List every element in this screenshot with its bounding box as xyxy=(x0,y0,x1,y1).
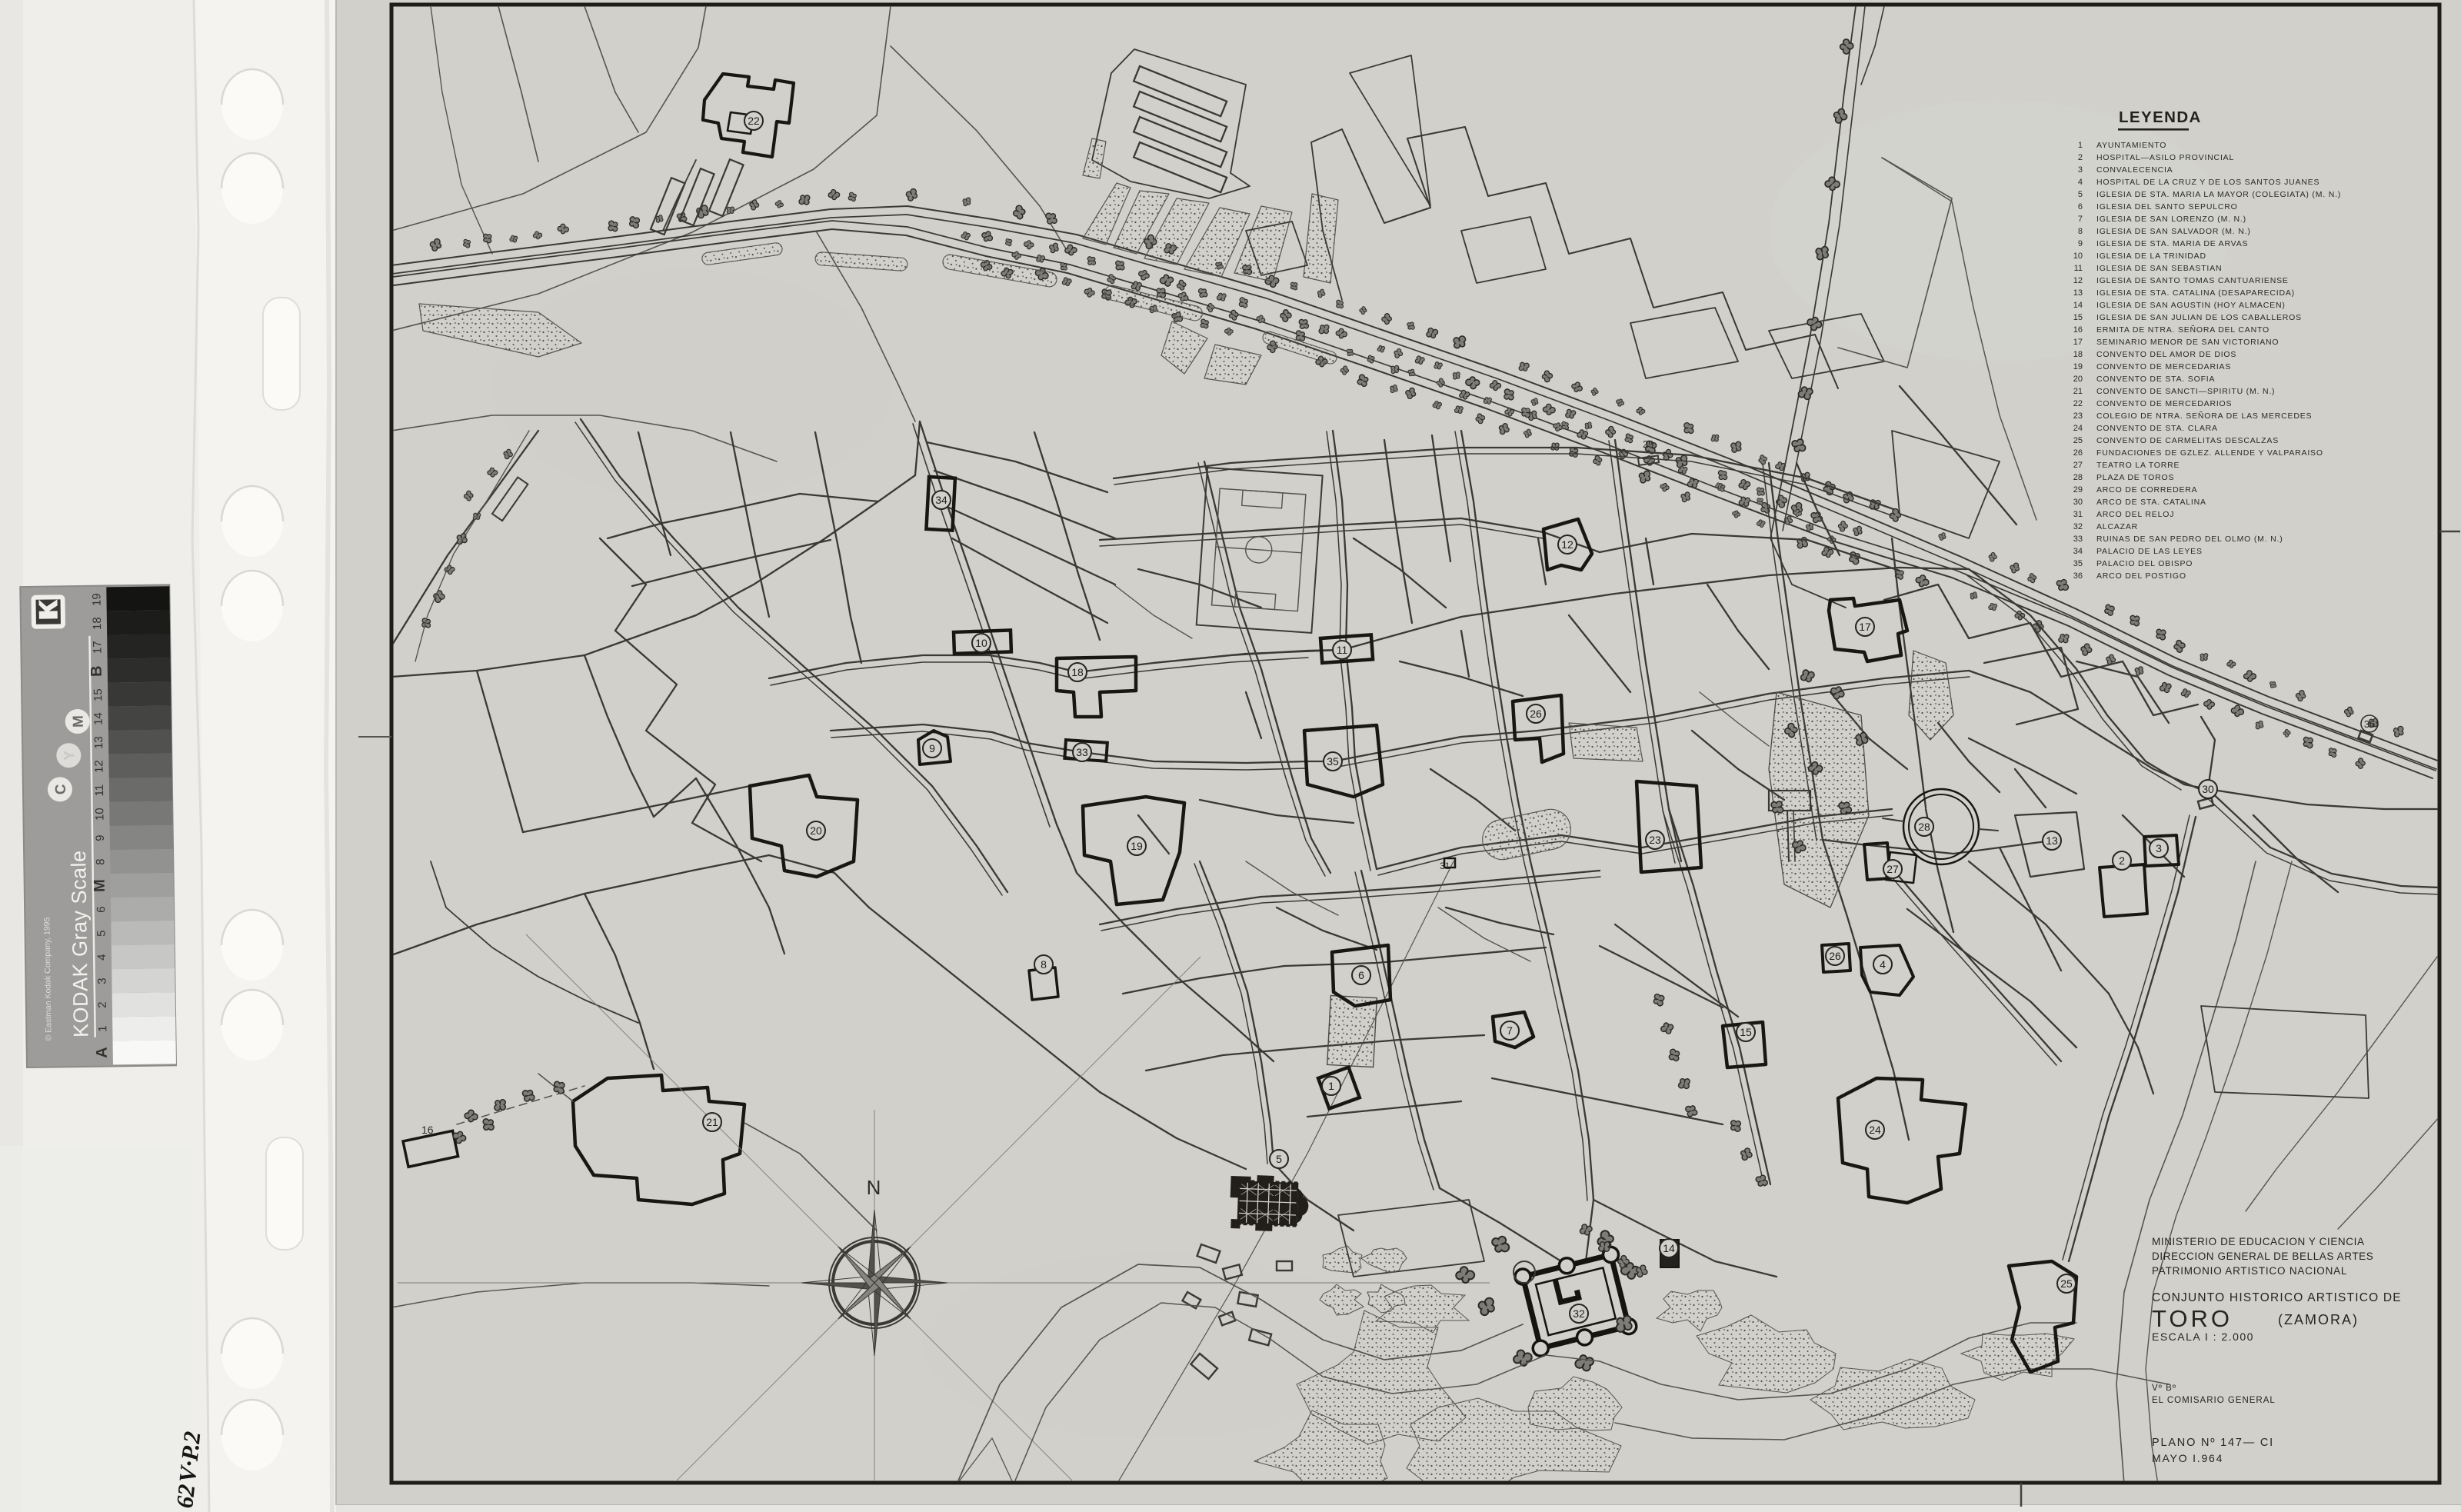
svg-text:Y: Y xyxy=(62,750,78,760)
svg-text:12: 12 xyxy=(1561,538,1574,551)
svg-text:ARCO DEL POSTIGO: ARCO DEL POSTIGO xyxy=(2096,571,2186,581)
svg-text:16: 16 xyxy=(421,1124,434,1136)
svg-text:20: 20 xyxy=(2073,375,2083,384)
svg-text:36: 36 xyxy=(2073,571,2083,581)
svg-text:20: 20 xyxy=(810,824,822,837)
svg-text:ARCO DE CORREDERA: ARCO DE CORREDERA xyxy=(2096,485,2197,495)
svg-text:TEATRO LA TORRE: TEATRO LA TORRE xyxy=(2096,461,2180,470)
svg-text:21: 21 xyxy=(706,1116,718,1128)
svg-text:HOSPITAL—ASILO PROVINCIAL: HOSPITAL—ASILO PROVINCIAL xyxy=(2096,153,2234,162)
svg-text:8: 8 xyxy=(1041,958,1047,971)
svg-text:27: 27 xyxy=(2073,461,2083,470)
svg-text:21: 21 xyxy=(2073,387,2083,396)
svg-text:15: 15 xyxy=(2073,313,2083,322)
svg-text:1: 1 xyxy=(1328,1080,1334,1092)
svg-text:24: 24 xyxy=(1869,1124,1881,1136)
svg-text:4: 4 xyxy=(95,954,108,961)
svg-text:23: 23 xyxy=(2073,411,2083,421)
svg-text:2: 2 xyxy=(96,1001,109,1008)
svg-text:IGLESIA DE SAN JULIAN D: IGLESIA DE SAN JULIAN DE LOS CABALLEROS xyxy=(2096,313,2302,322)
svg-text:LEYENDA: LEYENDA xyxy=(2119,108,2202,126)
svg-text:CONVENTO DE STA. SOFIA: CONVENTO DE STA. SOFIA xyxy=(2096,375,2215,384)
svg-text:19: 19 xyxy=(1131,840,1143,852)
svg-text:32: 32 xyxy=(1573,1307,1585,1320)
svg-text:33: 33 xyxy=(1076,746,1088,758)
svg-text:5: 5 xyxy=(95,930,108,937)
svg-text:30: 30 xyxy=(2073,498,2083,507)
svg-text:3: 3 xyxy=(2078,165,2083,175)
svg-text:HOSPITAL DE LA CRUZ Y DE: HOSPITAL DE LA CRUZ Y DE LOS SANTOS JUAN… xyxy=(2096,178,2319,187)
svg-text:PALACIO DE LAS LEYES: PALACIO DE LAS LEYES xyxy=(2096,547,2203,556)
svg-text:36: 36 xyxy=(2364,718,2375,730)
svg-text:2: 2 xyxy=(2078,153,2083,162)
svg-text:12: 12 xyxy=(92,760,105,773)
svg-text:25: 25 xyxy=(2060,1277,2073,1290)
svg-text:COLEGIO DE NTRA. SEÑORA: COLEGIO DE NTRA. SEÑORA DE LAS MERCEDES xyxy=(2096,411,2312,421)
svg-text:8: 8 xyxy=(94,858,107,865)
svg-text:10: 10 xyxy=(93,808,106,821)
svg-text:AYUNTAMIENTO: AYUNTAMIENTO xyxy=(2096,141,2166,150)
svg-text:26: 26 xyxy=(1530,708,1542,720)
svg-text:CONVALECENCIA: CONVALECENCIA xyxy=(2096,165,2173,175)
svg-text:30: 30 xyxy=(2202,783,2214,795)
svg-text:6: 6 xyxy=(2078,202,2083,211)
svg-text:22: 22 xyxy=(748,115,760,127)
svg-text:CONVENTO DE STA. CLARA: CONVENTO DE STA. CLARA xyxy=(2096,424,2218,433)
svg-text:15: 15 xyxy=(92,688,105,701)
svg-text:35: 35 xyxy=(1327,755,1339,768)
svg-text:IGLESIA DE SAN LORENZO: IGLESIA DE SAN LORENZO (M. N.) xyxy=(2096,215,2246,224)
svg-text:B: B xyxy=(88,665,105,677)
svg-text:ARCO DE STA. CATALINA: ARCO DE STA. CATALINA xyxy=(2096,498,2206,507)
svg-text:1: 1 xyxy=(96,1025,109,1032)
svg-text:4: 4 xyxy=(1880,958,1886,971)
svg-text:10: 10 xyxy=(975,637,987,649)
svg-text:14: 14 xyxy=(2073,301,2083,310)
svg-text:PLAZA DE TOROS: PLAZA DE TOROS xyxy=(2096,473,2174,482)
svg-text:7: 7 xyxy=(1507,1024,1513,1037)
svg-text:IGLESIA DEL SANTO SEPULCR: IGLESIA DEL SANTO SEPULCRO xyxy=(2096,202,2238,211)
svg-text:32: 32 xyxy=(2073,522,2083,531)
svg-text:1: 1 xyxy=(2078,141,2083,150)
svg-text:8: 8 xyxy=(2078,227,2083,236)
svg-text:KODAK Gray Scale: KODAK Gray Scale xyxy=(67,850,92,1037)
svg-text:IGLESIA DE STA. CATALIN: IGLESIA DE STA. CATALINA (DESAPARECIDA) xyxy=(2096,288,2295,298)
svg-text:17: 17 xyxy=(91,641,104,654)
svg-text:6: 6 xyxy=(1358,969,1364,981)
svg-text:14: 14 xyxy=(92,712,105,725)
svg-text:ESCALA I : 2.000: ESCALA I : 2.000 xyxy=(2152,1330,2254,1343)
svg-text:31: 31 xyxy=(1440,861,1450,871)
svg-text:17: 17 xyxy=(2073,338,2083,347)
svg-text:PALACIO DEL OBISPO: PALACIO DEL OBISPO xyxy=(2096,559,2193,568)
svg-text:IGLESIA DE LA TRINIDAD: IGLESIA DE LA TRINIDAD xyxy=(2096,251,2206,261)
svg-text:34: 34 xyxy=(2073,547,2083,556)
svg-text:10: 10 xyxy=(2073,251,2083,261)
svg-text:19: 19 xyxy=(2073,362,2083,371)
svg-text:FUNDACIONES DE GZLEZ. AL: FUNDACIONES DE GZLEZ. ALLENDE Y VALPARAI… xyxy=(2096,448,2323,458)
svg-text:3: 3 xyxy=(95,977,108,984)
svg-text:31: 31 xyxy=(2073,510,2083,519)
svg-text:IGLESIA DE STA. MARIA LA: IGLESIA DE STA. MARIA LA MAYOR (COLEGIAT… xyxy=(2096,190,2341,199)
svg-text:2: 2 xyxy=(2119,854,2125,867)
svg-text:(ZAMORA): (ZAMORA) xyxy=(2278,1312,2359,1327)
svg-text:34: 34 xyxy=(935,494,947,506)
svg-text:CONJUNTO HISTORICO ARTISTI: CONJUNTO HISTORICO ARTISTICO DE xyxy=(2152,1291,2402,1304)
svg-text:IGLESIA DE SANTO TOMAS: IGLESIA DE SANTO TOMAS CANTUARIENSE xyxy=(2096,276,2289,285)
svg-text:ERMITA DE NTRA. SEÑORA: ERMITA DE NTRA. SEÑORA DEL CANTO xyxy=(2096,325,2270,335)
svg-text:26: 26 xyxy=(2073,448,2083,458)
svg-text:11: 11 xyxy=(1337,644,1348,656)
svg-text:25: 25 xyxy=(2073,436,2083,445)
svg-text:19: 19 xyxy=(90,593,103,606)
svg-text:13: 13 xyxy=(2046,834,2058,847)
svg-text:11: 11 xyxy=(93,784,106,797)
svg-text:EL COMISARIO GENERAL: EL COMISARIO GENERAL xyxy=(2152,1396,2276,1405)
svg-text:15: 15 xyxy=(1740,1026,1752,1038)
svg-text:C: C xyxy=(53,784,69,794)
svg-text:29: 29 xyxy=(1643,438,1653,450)
svg-text:13: 13 xyxy=(92,736,105,749)
svg-text:PATRIMONIO ARTISTICO NAC: PATRIMONIO ARTISTICO NACIONAL xyxy=(2152,1265,2347,1277)
svg-text:CONVENTO DE MERCEDARIOS: CONVENTO DE MERCEDARIOS xyxy=(2096,399,2232,408)
svg-text:SEMINARIO MENOR DE SAN: SEMINARIO MENOR DE SAN VICTORIANO xyxy=(2096,338,2279,347)
svg-text:6: 6 xyxy=(95,906,108,913)
svg-text:17: 17 xyxy=(1859,621,1871,633)
svg-text:IGLESIA DE STA. MARIA: IGLESIA DE STA. MARIA DE ARVAS xyxy=(2096,239,2248,248)
svg-text:28: 28 xyxy=(1918,821,1930,833)
svg-text:ALCAZAR: ALCAZAR xyxy=(2096,522,2138,531)
svg-text:N: N xyxy=(867,1176,881,1199)
svg-text:18: 18 xyxy=(2073,350,2083,359)
svg-text:Vº Bº: Vº Bº xyxy=(2152,1384,2176,1393)
svg-text:29: 29 xyxy=(2073,485,2083,495)
svg-text:7: 7 xyxy=(2078,215,2083,224)
svg-text:24: 24 xyxy=(2073,424,2083,433)
svg-text:CONVENTO DE CARMELITAS DE: CONVENTO DE CARMELITAS DESCALZAS xyxy=(2096,436,2279,445)
svg-text:14: 14 xyxy=(1663,1242,1675,1254)
svg-text:4: 4 xyxy=(2078,178,2083,187)
svg-text:IGLESIA DE SAN SEBASTIA: IGLESIA DE SAN SEBASTIAN xyxy=(2096,264,2222,273)
svg-text:22: 22 xyxy=(2073,399,2083,408)
svg-text:12: 12 xyxy=(2073,276,2083,285)
svg-text:ARCO DEL RELOJ: ARCO DEL RELOJ xyxy=(2096,510,2174,519)
svg-text:© Eastman Kodak Company, 1995: © Eastman Kodak Company, 1995 xyxy=(42,917,53,1041)
svg-text:23: 23 xyxy=(1649,834,1661,846)
svg-text:CONVENTO DE SANCTI—SPIRITU: CONVENTO DE SANCTI—SPIRITU (M. N.) xyxy=(2096,387,2275,396)
svg-text:MINISTERIO DE EDUCACION Y: MINISTERIO DE EDUCACION Y CIENCIA xyxy=(2152,1236,2365,1247)
svg-text:11: 11 xyxy=(2074,264,2083,273)
svg-text:26: 26 xyxy=(1829,950,1841,962)
svg-text:9: 9 xyxy=(929,742,935,754)
svg-text:33: 33 xyxy=(2073,535,2083,544)
svg-text:27: 27 xyxy=(1887,863,1899,875)
svg-text:CONVENTO DE MERCEDARIAS: CONVENTO DE MERCEDARIAS xyxy=(2096,362,2231,371)
svg-text:28: 28 xyxy=(2073,473,2083,482)
svg-text:RUINAS DE SAN PEDRO DE: RUINAS DE SAN PEDRO DEL OLMO (M. N.) xyxy=(2096,535,2283,544)
svg-text:A: A xyxy=(94,1047,111,1058)
svg-text:3: 3 xyxy=(2156,842,2162,854)
svg-text:M: M xyxy=(92,879,108,892)
svg-text:CONVENTO DEL AMOR DE: CONVENTO DEL AMOR DE DIOS xyxy=(2096,350,2236,359)
svg-text:13: 13 xyxy=(2073,288,2083,298)
svg-text:5: 5 xyxy=(2078,190,2083,199)
svg-text:5: 5 xyxy=(1276,1153,1282,1165)
svg-text:PLANO Nº 147— CI: PLANO Nº 147— CI xyxy=(2152,1437,2274,1449)
svg-text:16: 16 xyxy=(2073,325,2083,335)
svg-text:35: 35 xyxy=(2073,559,2083,568)
svg-text:M: M xyxy=(71,715,87,728)
svg-text:MAYO I.964: MAYO I.964 xyxy=(2152,1452,2223,1464)
svg-text:DIRECCION GENERAL DE BELLAS: DIRECCION GENERAL DE BELLAS ARTES xyxy=(2152,1251,2373,1262)
svg-text:9: 9 xyxy=(94,834,107,841)
svg-text:18: 18 xyxy=(1071,666,1084,678)
svg-text:18: 18 xyxy=(91,617,104,630)
svg-text:TORO: TORO xyxy=(2152,1305,2233,1332)
svg-text:IGLESIA DE SAN SALVADOR: IGLESIA DE SAN SALVADOR (M. N.) xyxy=(2096,227,2251,236)
svg-text:9: 9 xyxy=(2078,239,2083,248)
svg-text:IGLESIA DE SAN AGUSTIN: IGLESIA DE SAN AGUSTIN (HOY ALMACEN) xyxy=(2096,301,2286,310)
